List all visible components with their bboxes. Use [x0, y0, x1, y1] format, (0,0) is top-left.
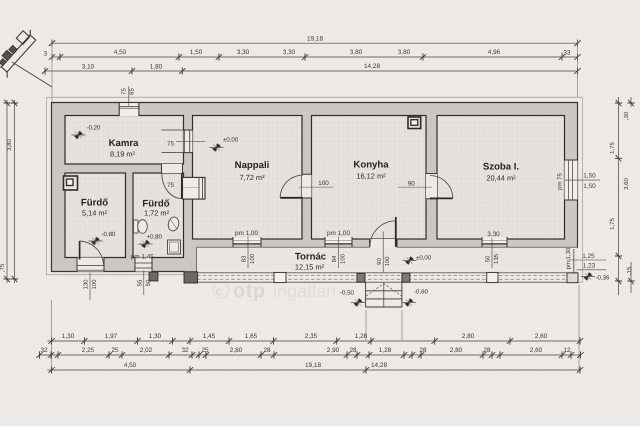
svg-text:Tornác: Tornác	[295, 252, 327, 263]
svg-text:1,72 m²: 1,72 m²	[144, 209, 170, 218]
svg-text:Fürdő: Fürdő	[81, 198, 108, 209]
svg-text:1,30: 1,30	[149, 333, 162, 340]
svg-text:+0,80: +0,80	[147, 234, 163, 241]
svg-text:2,02: 2,02	[140, 347, 153, 354]
svg-text:100: 100	[91, 279, 98, 290]
svg-text:2,80: 2,80	[450, 347, 463, 354]
svg-text:16,12 m²: 16,12 m²	[356, 172, 386, 181]
svg-text:14,28: 14,28	[364, 63, 380, 70]
svg-text:1,97: 1,97	[105, 333, 118, 340]
svg-text:4,50: 4,50	[114, 49, 127, 56]
svg-text:,30: ,30	[623, 111, 630, 120]
svg-text:1,30: 1,30	[62, 333, 75, 340]
svg-text:135: 135	[493, 253, 500, 264]
svg-text:14,28: 14,28	[371, 362, 387, 369]
svg-text:1,50: 1,50	[190, 49, 203, 56]
svg-text:90: 90	[408, 180, 416, 187]
svg-text:25: 25	[111, 347, 119, 354]
svg-text:75: 75	[167, 182, 175, 189]
svg-text:28: 28	[349, 347, 357, 354]
svg-text:28: 28	[263, 347, 271, 354]
svg-text:4,50: 4,50	[124, 362, 137, 369]
svg-text:84: 84	[331, 255, 338, 262]
svg-text:Kamra: Kamra	[109, 138, 140, 149]
svg-text:4,96: 4,96	[488, 49, 501, 56]
svg-text:32: 32	[181, 347, 189, 354]
svg-text:,33: ,33	[562, 50, 571, 57]
svg-text:130: 130	[83, 279, 90, 290]
svg-text:75: 75	[120, 88, 127, 95]
svg-text:65: 65	[128, 88, 135, 95]
svg-text:1,28: 1,28	[355, 333, 368, 340]
svg-text:3,30: 3,30	[237, 49, 250, 56]
svg-text:3,80: 3,80	[398, 49, 411, 56]
svg-text:-0,80: -0,80	[102, 231, 117, 238]
svg-text:75: 75	[167, 140, 175, 147]
svg-text:,15: ,15	[626, 266, 633, 275]
svg-text:50: 50	[485, 255, 492, 262]
svg-text:2,60: 2,60	[535, 333, 548, 340]
svg-text:-0,50: -0,50	[340, 289, 355, 296]
svg-text:100: 100	[249, 253, 256, 264]
svg-text:100: 100	[318, 180, 329, 187]
svg-text:83: 83	[241, 255, 248, 262]
svg-text:-0,36: -0,36	[596, 275, 611, 282]
svg-text:1,23: 1,23	[583, 263, 596, 270]
svg-text:2,80: 2,80	[462, 333, 475, 340]
svg-text:pm 1,00: pm 1,00	[327, 230, 351, 237]
svg-text:1,65: 1,65	[245, 333, 258, 340]
svg-text:c: c	[216, 284, 223, 298]
svg-text:-0,60: -0,60	[414, 289, 429, 296]
svg-text:5,14 m²: 5,14 m²	[82, 209, 108, 218]
svg-text:±0,00: ±0,00	[223, 137, 239, 144]
svg-text:1,75: 1,75	[609, 142, 616, 154]
svg-text:55: 55	[136, 279, 143, 286]
svg-text:1,50: 1,50	[583, 183, 596, 190]
svg-text:3,80: 3,80	[6, 139, 13, 151]
svg-text:ingatlan: ingatlan	[273, 281, 336, 301]
svg-text:Konyha: Konyha	[353, 160, 389, 171]
svg-text:19,18: 19,18	[305, 362, 321, 369]
svg-text:2,90: 2,90	[327, 347, 340, 354]
svg-text:pm 1,45: pm 1,45	[131, 253, 155, 260]
svg-text:2,25: 2,25	[82, 347, 95, 354]
svg-text:3,30: 3,30	[487, 231, 500, 238]
svg-text:1,80: 1,80	[150, 64, 163, 71]
svg-text:-0,20: -0,20	[87, 125, 102, 132]
svg-text:32: 32	[40, 347, 48, 354]
svg-text:3,80: 3,80	[350, 49, 363, 56]
svg-text:1,25: 1,25	[582, 253, 595, 260]
svg-text:pm 75: pm 75	[557, 173, 564, 190]
svg-text:Nappali: Nappali	[235, 160, 270, 171]
svg-text:2,35: 2,35	[305, 333, 318, 340]
svg-text:2,60: 2,60	[530, 347, 543, 354]
svg-text:3: 3	[43, 51, 47, 58]
svg-text:12: 12	[563, 347, 571, 354]
svg-text:±0,00: ±0,00	[416, 255, 432, 262]
svg-text:1,50: 1,50	[583, 173, 596, 180]
svg-text:,75: ,75	[0, 263, 6, 272]
svg-text:pm 1,30: pm 1,30	[565, 247, 572, 269]
svg-text:2,80: 2,80	[230, 347, 243, 354]
svg-text:1,28: 1,28	[379, 347, 392, 354]
svg-text:28: 28	[419, 347, 427, 354]
svg-text:20,44 m²: 20,44 m²	[486, 174, 516, 183]
svg-text:1,45: 1,45	[203, 333, 216, 340]
svg-text:3,30: 3,30	[283, 49, 296, 56]
svg-text:100: 100	[340, 253, 347, 264]
svg-text:7,72 m²: 7,72 m²	[239, 173, 265, 182]
svg-text:100: 100	[384, 256, 391, 267]
svg-text:3,60: 3,60	[623, 178, 630, 190]
svg-text:12,15 m²: 12,15 m²	[295, 263, 325, 272]
svg-text:90: 90	[376, 258, 383, 265]
svg-text:otp: otp	[233, 280, 266, 302]
svg-text:19,18: 19,18	[307, 36, 323, 43]
svg-text:3,10: 3,10	[82, 64, 95, 71]
svg-text:25: 25	[201, 347, 209, 354]
svg-text:pm 1,00: pm 1,00	[235, 230, 259, 237]
svg-text:8,19 m²: 8,19 m²	[110, 150, 136, 159]
svg-text:1,75: 1,75	[609, 218, 616, 230]
svg-text:28: 28	[483, 347, 491, 354]
svg-text:Szoba I.: Szoba I.	[483, 162, 519, 173]
